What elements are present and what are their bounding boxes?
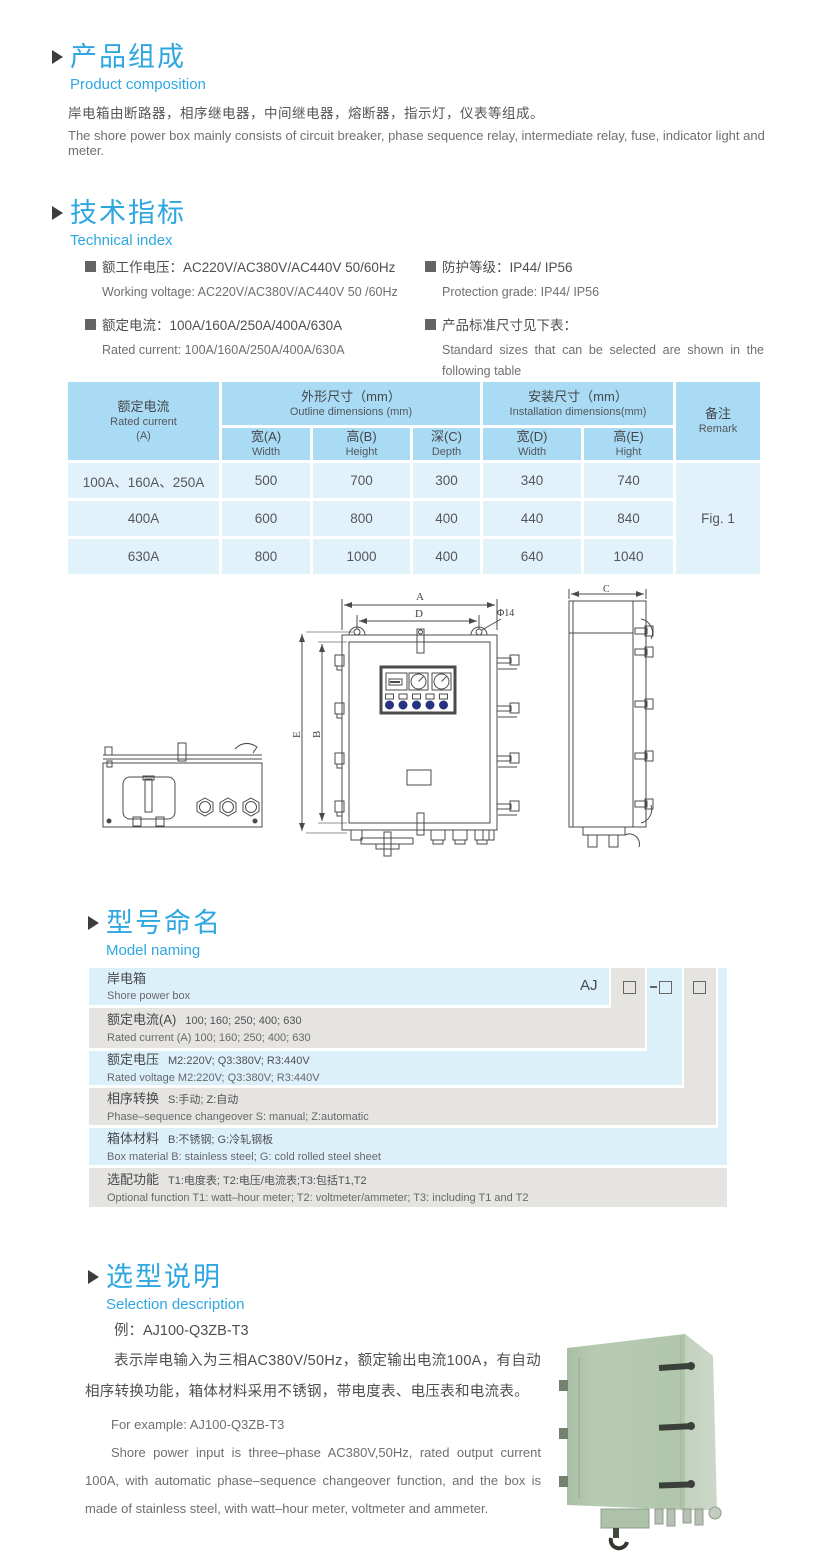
model-row-rated-voltage: 额定电压M2:220V; Q3:380V; R3:440V Rated volt… [89,1051,682,1085]
header-install-en: Installation dimensions(mm) [510,406,647,419]
dim-label-c: C [603,585,610,595]
latch-icons [497,655,519,815]
spec-standard-sizes-cn: 产品标准尺寸见下表： [442,318,577,333]
spec-item: 额定电流：100A/160A/250A/400A/630A Rated curr… [85,313,425,361]
side-view-drawing: C [569,585,653,847]
meter-panel-drawing [381,667,455,713]
size-table-subheader-width-a: 宽(A)Width [222,428,310,460]
bottom-view-drawing [103,743,262,827]
header-outline-en: Outline dimensions (mm) [290,406,412,419]
selection-heading: 选型说明 Selection description [88,1262,244,1313]
section-selection-description: 选型说明 Selection description [88,1262,244,1313]
header-rated-unit: (A) [136,430,151,443]
table-row-rated: 100A、160A、250A [68,463,219,498]
model-row-label-cn: 岸电箱 [107,971,609,987]
model-row-label-en: Rated voltage M2:220V; Q3:380V; R3:440V [107,1072,682,1084]
model-row-label-cn: 箱体材料 [107,1131,159,1146]
section-product-composition: 产品组成 Product composition 岸电箱由断路器，相序继电器，中… [52,42,792,93]
front-bottom-fittings [351,813,494,856]
spec-item: 防护等级：IP44/ IP56 Protection grade: IP44/ … [425,255,765,303]
composition-body-cn: 岸电箱由断路器，相序继电器，中间继电器，熔断器，指示灯，仪表等组成。 [68,102,788,122]
table-cell: 740 [584,463,673,498]
spec-working-voltage-cn: 额工作电压：AC220V/AC380V/AC440V 50/60Hz [102,260,395,275]
table-cell: 800 [313,501,410,536]
spec-item: 产品标准尺寸见下表： Standard sizes that can be se… [425,313,765,382]
front-view-drawing: A D Φ14 E B [291,591,519,856]
technical-heading: 技术指标 Technical index [52,198,792,249]
spec-item: 额工作电压：AC220V/AC380V/AC440V 50/60Hz Worki… [85,255,425,303]
table-row-rated: 630A [68,539,219,574]
selection-example-en: For example: AJ100-Q3ZB-T3 [85,1411,541,1439]
selection-example-cn: 例：AJ100-Q3ZB-T3 [85,1316,541,1346]
model-row-label-cn: 相序转换 [107,1091,159,1106]
size-table-subheader-depth-c: 深(C)Depth [413,428,480,460]
technical-drawings: A D Φ14 E B [85,585,765,890]
size-table-subheader-height-b: 高(B)Height [313,428,410,460]
dim-label-a: A [416,591,424,603]
table-cell: 300 [413,463,480,498]
model-naming-heading: 型号命名 Model naming [88,908,222,959]
composition-heading: 产品组成 Product composition [52,42,792,93]
composition-title-en: Product composition [70,76,206,93]
model-code-dash [650,986,657,988]
table-cell: 1040 [584,539,673,574]
spec-working-voltage-en: Working voltage: AC220V/AC380V/AC440V 50… [102,282,425,303]
square-bullet-icon [425,319,436,330]
model-naming-title-en: Model naming [106,942,222,959]
model-row-detail-cn: T1:电度表; T2:电压/电流表;T3:包括T1,T2 [168,1175,367,1187]
product-photo [543,1312,803,1568]
header-remark-en: Remark [699,423,738,436]
selection-title-cn: 选型说明 [106,1262,244,1292]
table-cell: 700 [313,463,410,498]
header-remark-cn: 备注 [705,406,731,422]
model-row-label-cn: 选配功能 [107,1172,159,1187]
spec-standard-sizes-en: Standard sizes that can be selected are … [442,340,764,382]
selection-body: 例：AJ100-Q3ZB-T3 表示岸电输入为三相AC380V/50Hz，额定输… [85,1316,541,1523]
triangle-bullet-icon [52,206,63,220]
model-row-rated-current: 额定电流(A)100; 160; 250; 400; 630 Rated cur… [89,1008,645,1048]
model-row-box-material: 箱体材料B:不锈钢; G:冷轧钢板 Box material B: stainl… [89,1128,727,1165]
dim-label-dia14: Φ14 [497,608,514,619]
header-rated-en: Rated current [110,416,177,429]
hinge-icons [559,1380,568,1487]
selection-body-cn: 表示岸电输入为三相AC380V/50Hz，额定输出电流100A，有自动相序转换功… [85,1346,541,1408]
model-code-box-3 [693,981,706,994]
triangle-bullet-icon [88,916,99,930]
bottom-fittings [601,1507,721,1548]
selection-title-en: Selection description [106,1296,244,1313]
spec-column-right: 防护等级：IP44/ IP56 Protection grade: IP44/ … [425,255,765,392]
header-rated-cn: 额定电流 [117,399,169,415]
triangle-bullet-icon [88,1270,99,1284]
model-code-box-1 [623,981,636,994]
model-row-optional-function: 选配功能T1:电度表; T2:电压/电流表;T3:包括T1,T2 Optiona… [89,1168,727,1207]
table-cell-remark: Fig. 1 [676,463,760,574]
model-strip-material [718,968,727,1128]
size-table-subheader-height-e: 高(E)Hight [584,428,673,460]
model-naming-table: 岸电箱 Shore power box 额定电流(A)100; 160; 250… [89,968,728,1209]
model-naming-title-cn: 型号命名 [106,908,222,938]
table-cell: 600 [222,501,310,536]
size-table-header-rated-current: 额定电流 Rated current (A) [68,382,219,460]
model-row-shore-power-box: 岸电箱 Shore power box [89,968,609,1005]
triangle-bullet-icon [52,50,63,64]
composition-body-en: The shore power box mainly consists of c… [68,128,788,158]
model-row-label-en: Rated current (A) 100; 160; 250; 400; 63… [107,1032,645,1044]
table-cell: 840 [584,501,673,536]
section-technical-index: 技术指标 Technical index 额工作电压：AC220V/AC380V… [52,198,792,373]
size-table-header-install: 安装尺寸（mm） Installation dimensions(mm) [483,382,673,425]
model-code-box-2 [659,981,672,994]
catalog-page: 产品组成 Product composition 岸电箱由断路器，相序继电器，中… [0,0,830,1568]
dim-label-d: D [415,608,423,620]
composition-title-cn: 产品组成 [70,42,206,72]
table-cell: 800 [222,539,310,574]
model-row-detail-cn: S:手动; Z:自动 [168,1094,238,1106]
hinge-icons [335,655,344,816]
table-cell: 1000 [313,539,410,574]
header-outline-cn: 外形尺寸（mm） [301,389,401,405]
spec-protection-grade-cn: 防护等级：IP44/ IP56 [442,260,573,275]
size-table-subheader-width-d: 宽(D)Width [483,428,581,460]
model-row-label-cn: 额定电流(A) [107,1012,176,1027]
model-row-label-en: Phase–sequence changeover S: manual; Z:a… [107,1111,716,1123]
outline-drawing-svg: A D Φ14 E B [85,585,765,885]
side-bottom-fittings [583,827,639,847]
dim-label-e: E [291,731,303,738]
model-row-label-cn: 额定电压 [107,1052,159,1067]
dim-label-b: B [311,731,323,738]
square-bullet-icon [85,261,96,272]
section-model-naming: 型号命名 Model naming [88,908,222,959]
size-table-header-remark: 备注 Remark [676,382,760,460]
size-table: 额定电流 Rated current (A) 外形尺寸（mm） Outline … [68,382,760,574]
model-row-label-en: Optional function T1: watt–hour meter; T… [107,1192,727,1204]
table-cell: 440 [483,501,581,536]
model-row-label-en: Box material B: stainless steel; G: cold… [107,1151,727,1163]
square-bullet-icon [425,261,436,272]
spec-protection-grade-en: Protection grade: IP44/ IP56 [442,282,765,303]
spec-rated-current-en: Rated current: 100A/160A/250A/400A/630A [102,340,425,361]
table-cell: 400 [413,501,480,536]
square-bullet-icon [85,319,96,330]
table-cell: 340 [483,463,581,498]
spec-rated-current-cn: 额定电流：100A/160A/250A/400A/630A [102,318,342,333]
side-latch-icons [635,619,653,823]
technical-title-en: Technical index [70,232,186,249]
table-cell: 640 [483,539,581,574]
model-row-phase-sequence: 相序转换S:手动; Z:自动 Phase–sequence changeover… [89,1088,716,1125]
size-table-header-outline: 外形尺寸（mm） Outline dimensions (mm) [222,382,480,425]
spec-column-left: 额工作电压：AC220V/AC380V/AC440V 50/60Hz Worki… [85,255,425,371]
model-row-detail-cn: B:不锈钢; G:冷轧钢板 [168,1134,273,1146]
header-install-cn: 安装尺寸（mm） [528,389,628,405]
product-photo-svg [543,1312,803,1564]
technical-title-cn: 技术指标 [70,198,186,228]
table-row-rated: 400A [68,501,219,536]
model-row-detail-cn: 100; 160; 250; 400; 630 [185,1015,301,1027]
model-row-label-en: Shore power box [107,990,609,1002]
table-cell: 500 [222,463,310,498]
selection-body-en: Shore power input is three–phase AC380V,… [85,1439,541,1523]
model-row-detail-cn: M2:220V; Q3:380V; R3:440V [168,1055,310,1067]
model-prefix: AJ [580,977,598,994]
table-cell: 400 [413,539,480,574]
